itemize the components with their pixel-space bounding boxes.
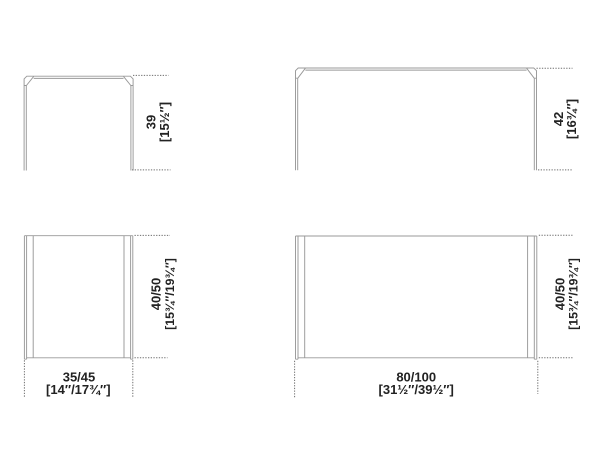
svg-text:[14″/17¾″]: [14″/17¾″] [46,382,111,397]
svg-text:40/50: 40/50 [149,278,164,311]
svg-text:[15¾″/19¾″]: [15¾″/19¾″] [567,258,581,330]
svg-text:[15½″]: [15½″] [157,102,172,142]
svg-text:40/50: 40/50 [552,278,567,311]
svg-text:[31½″/39½″]: [31½″/39½″] [379,382,454,397]
svg-text:[15¾″/19¾″]: [15¾″/19¾″] [163,258,177,330]
svg-text:[16¾″]: [16¾″] [564,99,579,139]
